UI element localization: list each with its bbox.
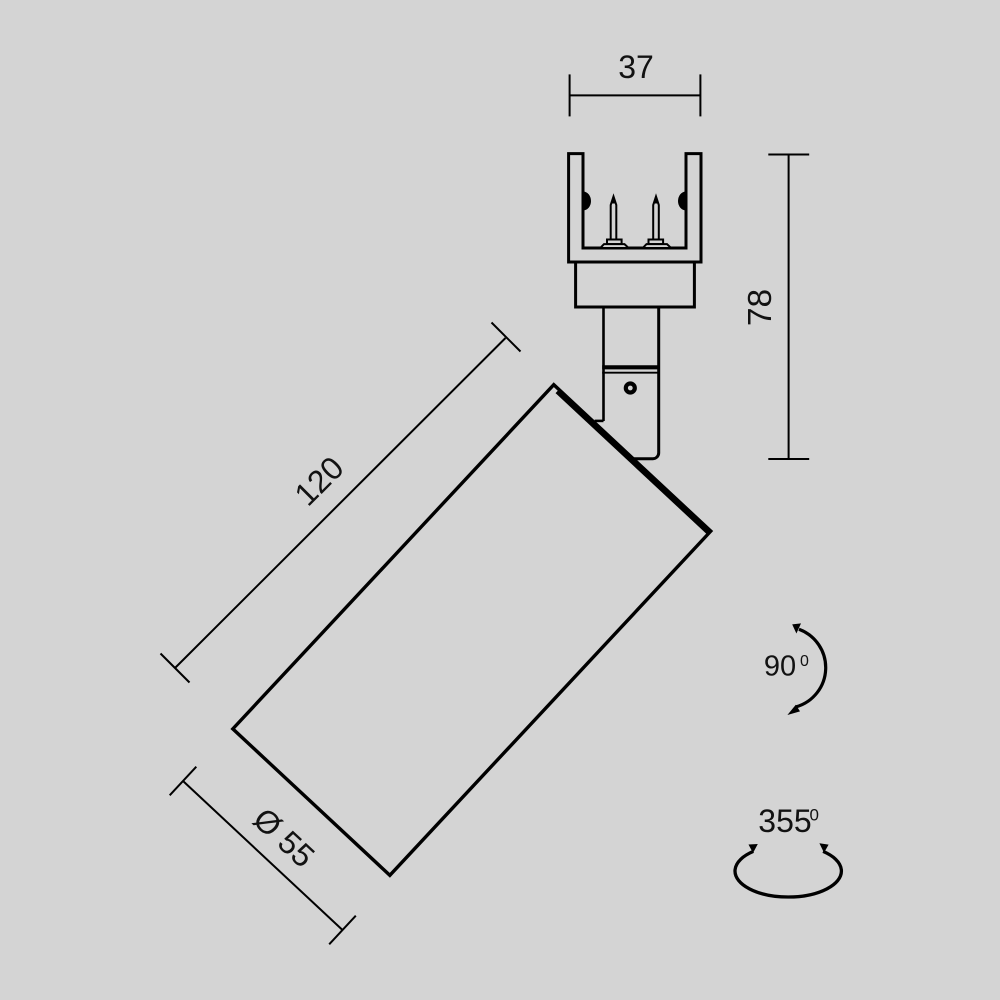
svg-text:78: 78 <box>742 289 779 326</box>
svg-text:37: 37 <box>618 49 654 85</box>
svg-text:0: 0 <box>810 806 819 825</box>
svg-text:355: 355 <box>758 803 811 839</box>
svg-text:90: 90 <box>764 651 796 683</box>
svg-text:0: 0 <box>800 653 809 670</box>
